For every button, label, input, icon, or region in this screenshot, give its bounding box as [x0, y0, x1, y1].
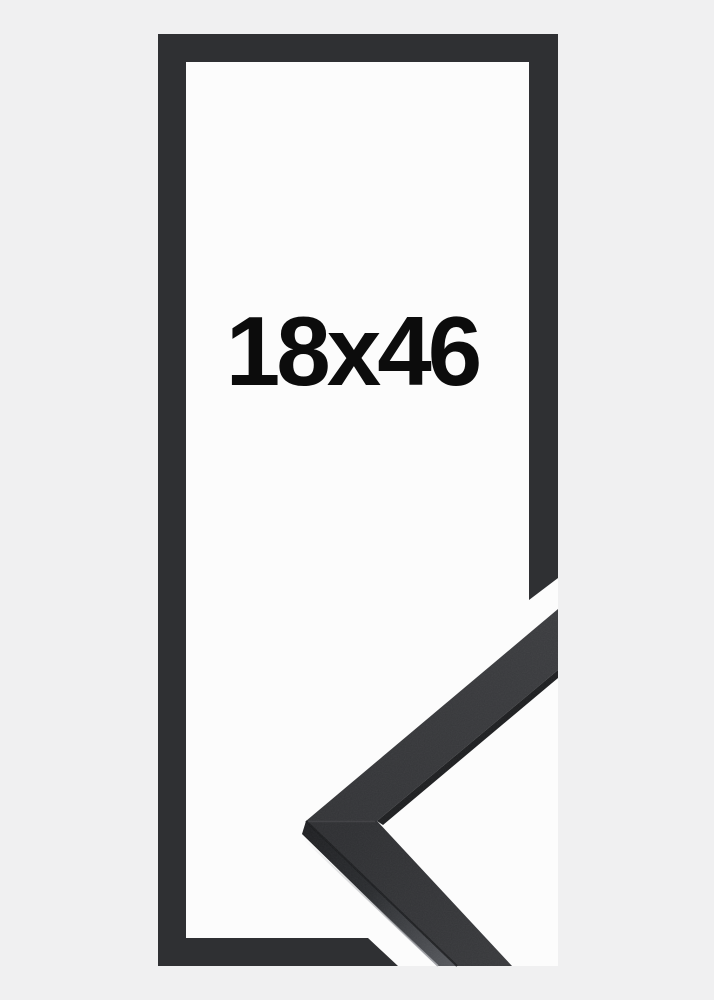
frame-product-image: 18x46: [0, 0, 714, 1000]
size-label: 18x46: [169, 302, 535, 400]
frame-illustration: [0, 0, 714, 1000]
